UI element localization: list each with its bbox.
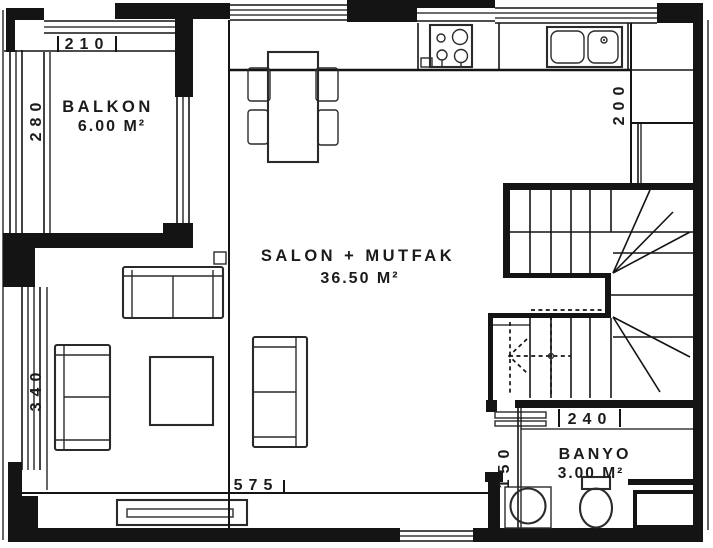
dining-chair [248,68,270,101]
dim-balcony-depth: 280 [28,97,45,142]
kitchen-stove [421,25,472,68]
toilet [580,477,612,528]
room-area-salon: 36.50 M² [320,270,399,287]
dim-balcony-width: 210 [65,36,110,53]
window-kitchen [417,13,495,21]
armchair [253,337,307,447]
floor-plan-canvas: 210 280 BALKON 6.00 M² SALON + MUTFAK 36… [0,0,713,548]
kitchen-sink [547,27,622,67]
dining-table [268,52,318,162]
room-name-salon: SALON + MUTFAK [261,247,455,265]
loveseat [55,345,110,450]
dining-chair [318,110,338,145]
window-top-right [495,8,657,23]
stair-walk-line [509,310,608,396]
sofa [123,267,223,318]
dim-kitchen-counter: 200 [611,81,628,126]
window-top-left [230,5,347,20]
labels: 210 280 BALKON 6.00 M² SALON + MUTFAK 36… [28,36,631,494]
staircase [488,183,700,400]
room-name-balkon: BALKON [62,98,154,116]
dim-living-left: 340 [28,367,45,412]
tv-unit [117,500,247,525]
dimension-lines [4,20,490,528]
dining-set [248,52,338,162]
dim-living-width: 575 [234,477,279,494]
room-area-balkon: 6.00 M² [78,118,146,135]
dim-bath-strip: 150 [496,444,513,489]
floor-plan-image: 210 280 BALKON 6.00 M² SALON + MUTFAK 36… [0,0,713,548]
dining-chair [316,68,338,101]
window-bottom [400,531,473,541]
dining-chair [248,110,268,144]
shower-tray [635,492,695,527]
coffee-table [150,357,213,425]
dim-bath-width: 240 [568,411,613,428]
side-table [214,252,226,264]
bathroom-sink [505,487,551,528]
room-area-banyo: 3.00 M² [558,465,625,482]
room-name-banyo: BANYO [559,446,632,463]
